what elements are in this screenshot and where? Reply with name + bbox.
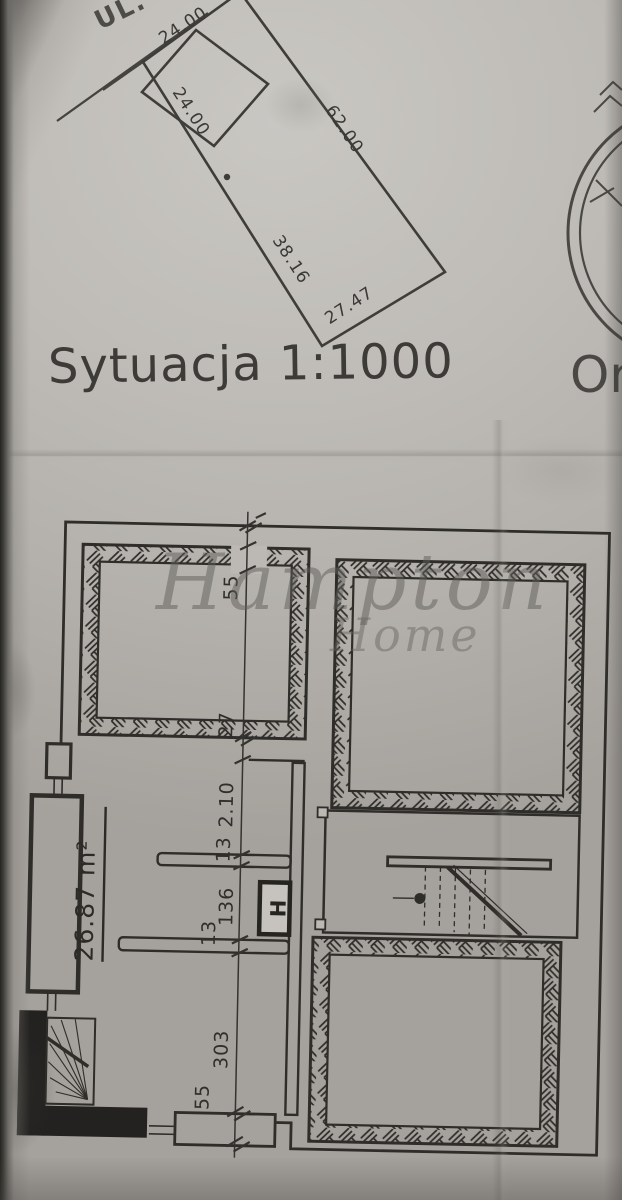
- vertical-fold-crease: [492, 420, 510, 1200]
- horizontal-fold-crease: [0, 449, 622, 463]
- scanned-drawing-page: UL. 24.00 24.00 62.00 38.16 27.47 Sytuac…: [0, 0, 622, 1200]
- page-edge-shadow-left: [0, 0, 30, 1200]
- page-edge-shadow-right: [604, 0, 622, 1200]
- page-edge-shadow-bottom: [0, 1156, 622, 1200]
